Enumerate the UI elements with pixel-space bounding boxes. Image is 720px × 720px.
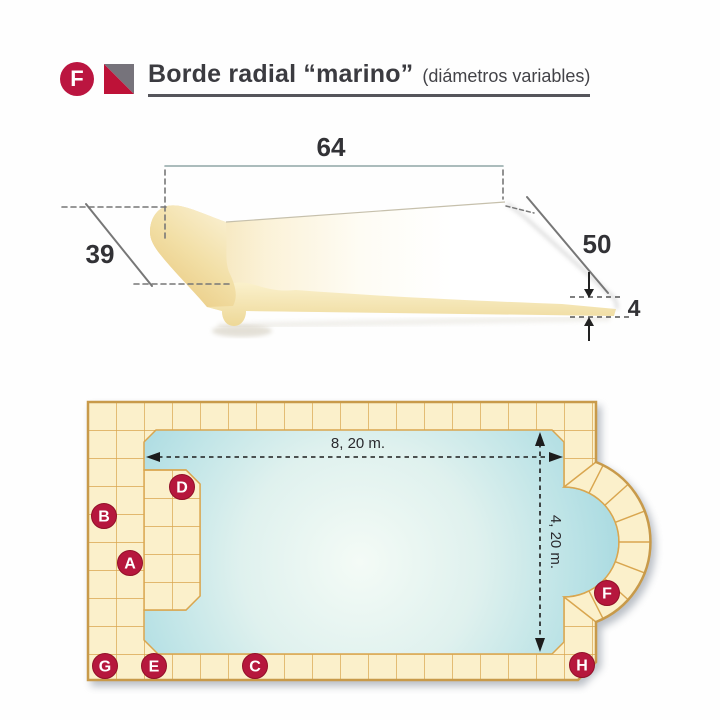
dim-50-label: 50 [583,229,612,259]
marker-F: F [595,581,620,606]
marker-A-letter: A [124,556,136,573]
dim-4-label: 4 [628,295,641,321]
pool-width-label: 8, 20 m. [331,435,385,452]
marker-C-letter: C [249,659,261,676]
document-page: F Borde radial “marino” (diámetros varia… [0,0,720,720]
marker-C: C [243,654,268,679]
marker-D: D [170,475,195,500]
dim-39-label: 39 [86,239,115,269]
marker-E: E [142,654,167,679]
piece-shadow-edge [218,318,610,326]
marker-D-letter: D [176,480,188,497]
dim-64-label: 64 [317,132,346,162]
pool-plan: 8, 20 m. 4, 20 m. A B C [88,402,650,680]
marker-B-letter: B [98,509,110,526]
marker-G: G [93,654,118,679]
edge-piece-diagram: 64 39 50 4 [62,132,641,341]
marker-H-letter: H [576,658,588,675]
marker-E-letter: E [149,659,160,676]
marker-A: A [118,551,143,576]
figures-canvas: 64 39 50 4 [0,0,720,720]
piece-cross-section [150,205,236,307]
marker-G-letter: G [99,659,111,676]
marker-H: H [570,653,595,678]
marker-F-letter: F [602,586,612,603]
pool-height-label: 4, 20 m. [547,515,564,569]
marker-B: B [92,504,117,529]
